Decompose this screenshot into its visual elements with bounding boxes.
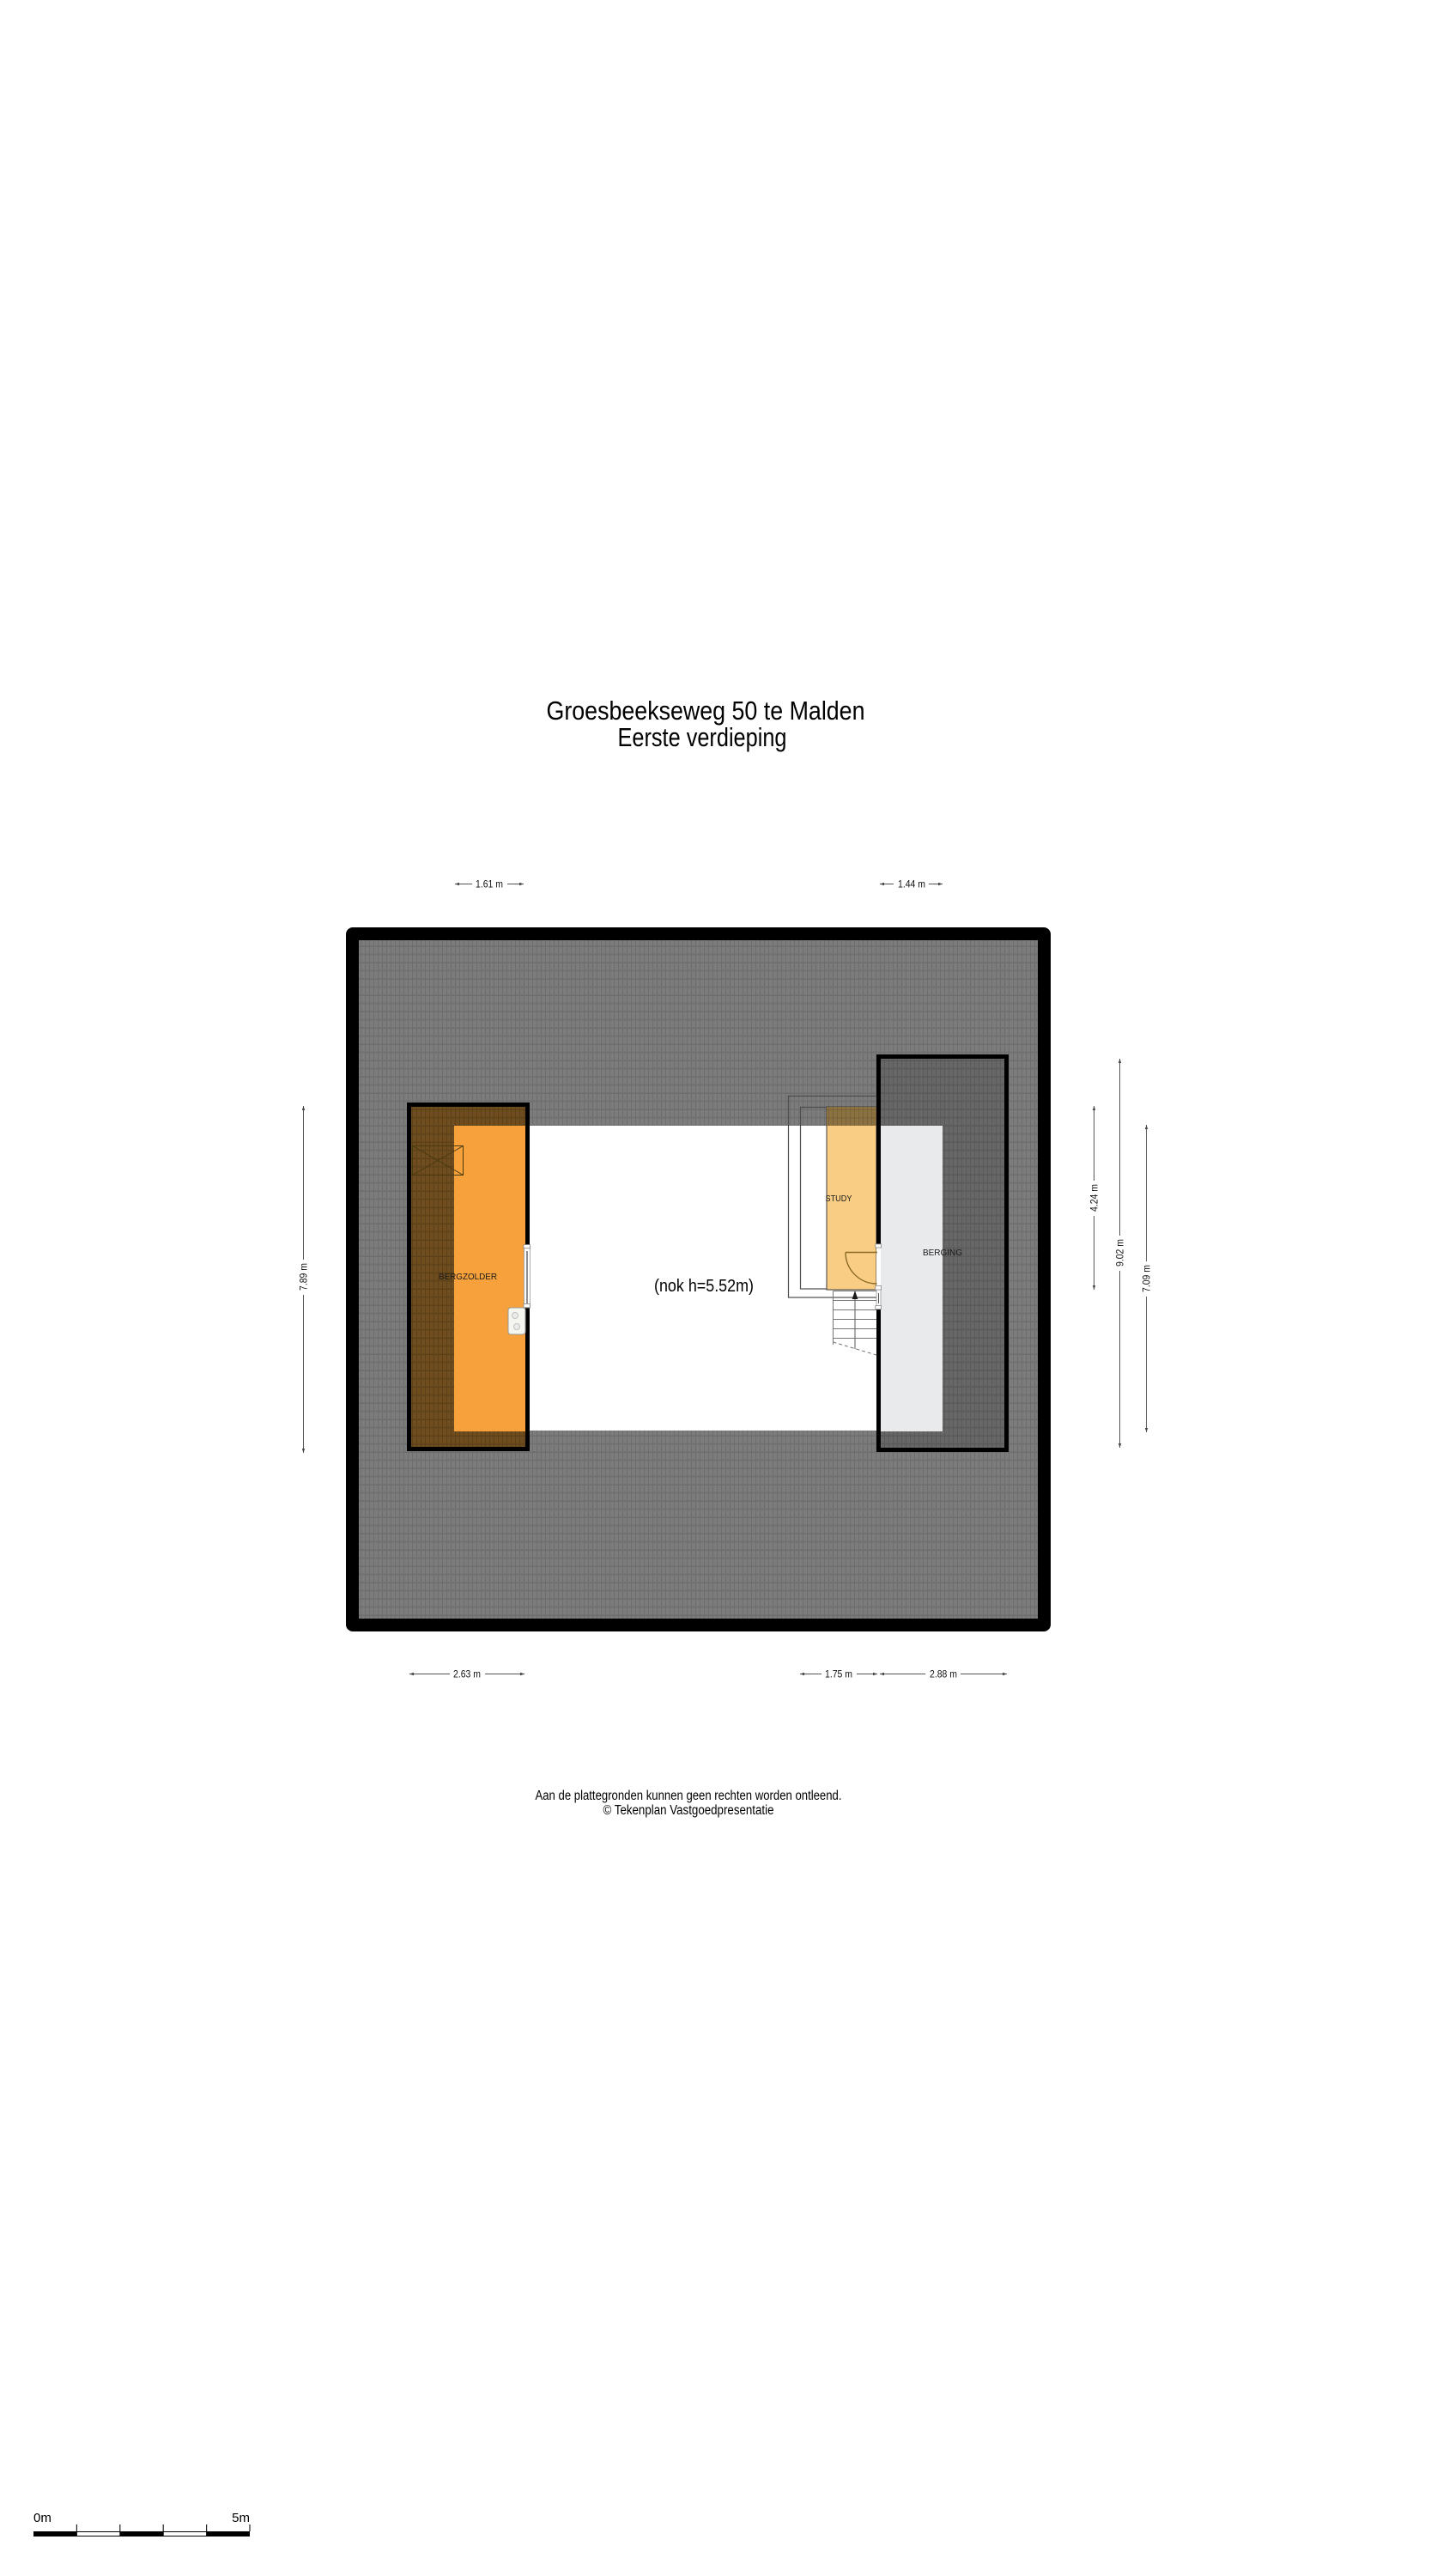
svg-text:2.63 m: 2.63 m xyxy=(453,1670,481,1680)
svg-text:BERGZOLDER: BERGZOLDER xyxy=(439,1272,497,1282)
svg-text:Eerste verdieping: Eerste verdieping xyxy=(618,722,787,752)
svg-text:1.75 m: 1.75 m xyxy=(825,1670,852,1680)
svg-text:1.61 m: 1.61 m xyxy=(476,880,503,890)
svg-text:7.09 m: 7.09 m xyxy=(1143,1265,1153,1292)
svg-text:BERGING: BERGING xyxy=(923,1248,962,1258)
svg-text:5m: 5m xyxy=(232,2511,250,2525)
svg-text:(nok h=5.52m): (nok h=5.52m) xyxy=(654,1277,754,1296)
svg-text:Aan de plattegronden kunnen ge: Aan de plattegronden kunnen geen rechten… xyxy=(536,1789,842,1803)
svg-text:1.44 m: 1.44 m xyxy=(898,880,925,890)
svg-text:4.24 m: 4.24 m xyxy=(1090,1184,1100,1212)
svg-text:© Tekenplan Vastgoedpresentati: © Tekenplan Vastgoedpresentatie xyxy=(603,1803,774,1818)
svg-text:9.02 m: 9.02 m xyxy=(1116,1239,1126,1267)
svg-text:7.89 m: 7.89 m xyxy=(300,1263,310,1291)
svg-text:STUDY: STUDY xyxy=(826,1194,852,1204)
svg-text:2.88 m: 2.88 m xyxy=(930,1670,957,1680)
svg-text:0m: 0m xyxy=(33,2511,52,2525)
svg-text:Groesbeekseweg 50 te Malden: Groesbeekseweg 50 te Malden xyxy=(547,696,865,726)
